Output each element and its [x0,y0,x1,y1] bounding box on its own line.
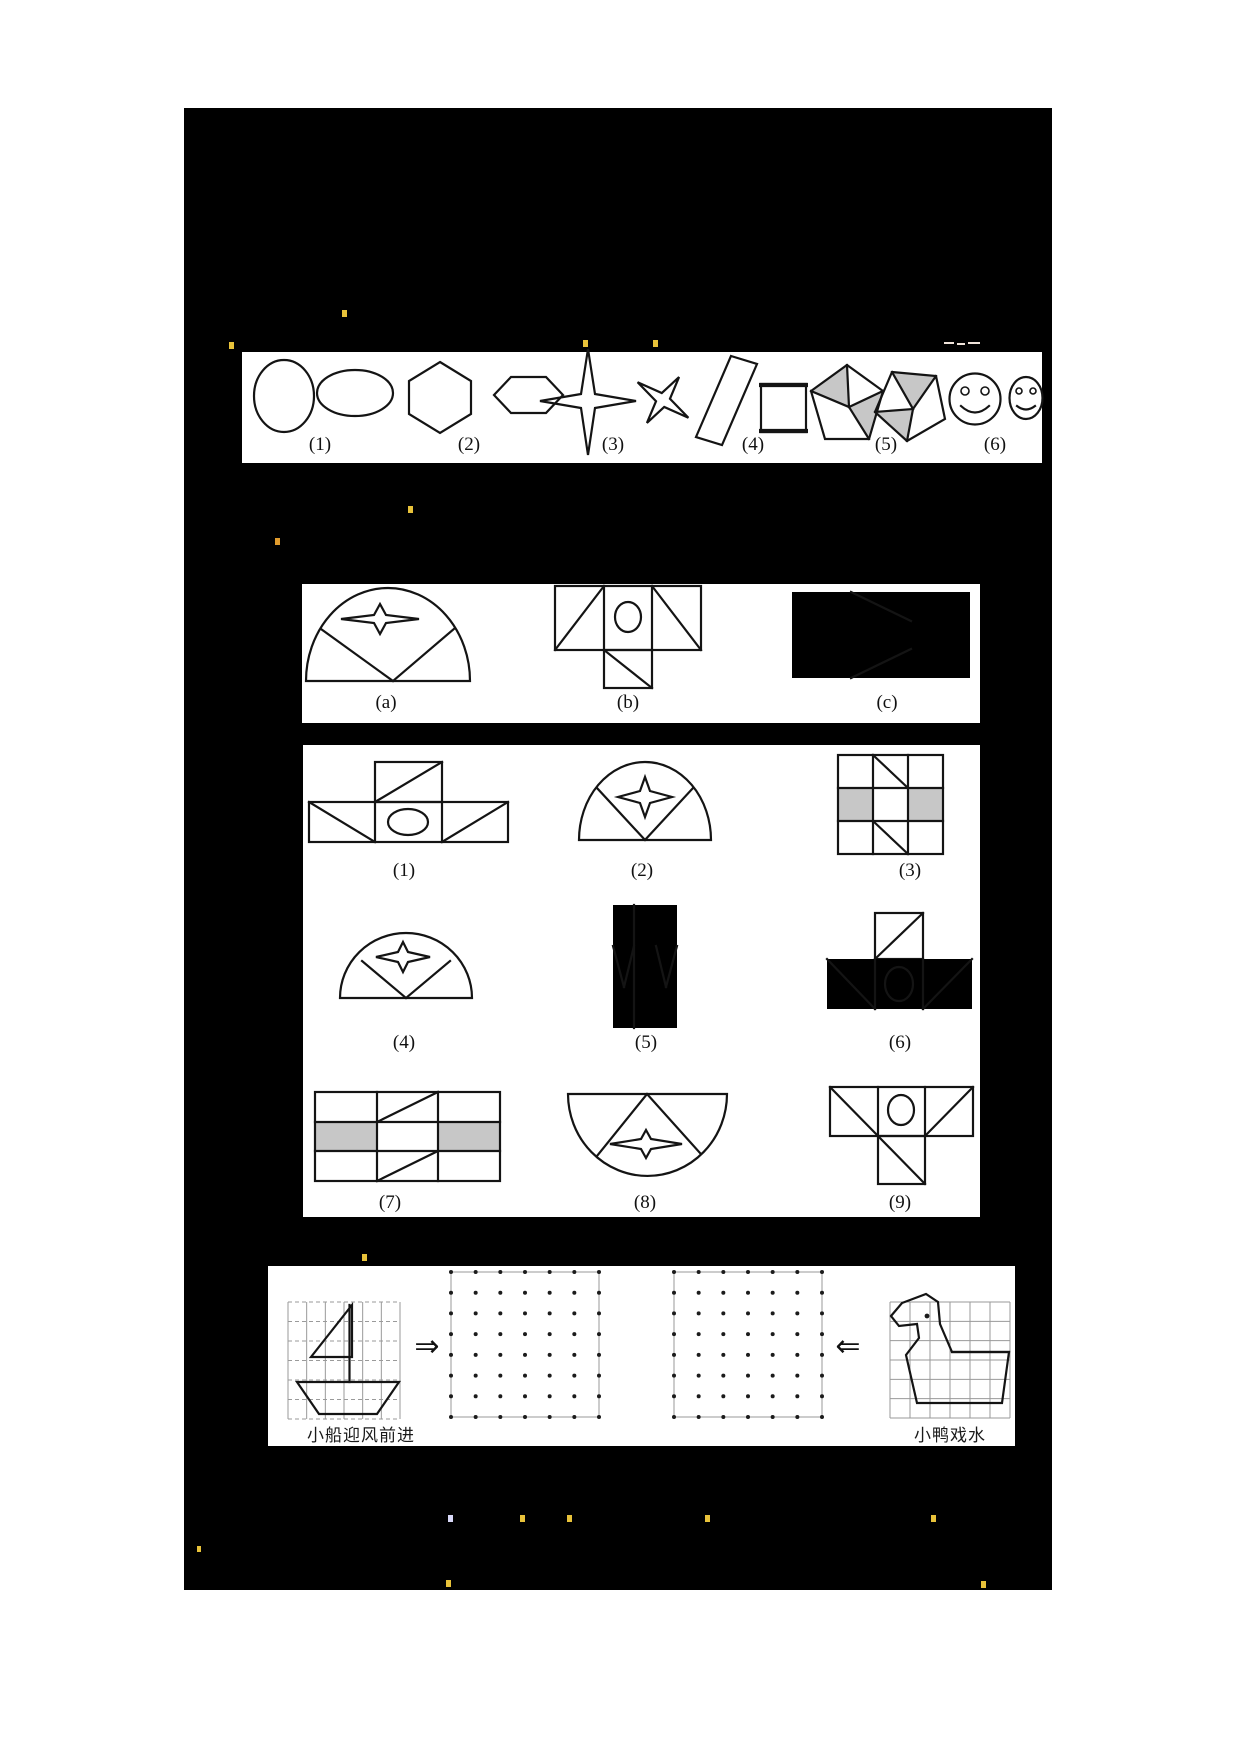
boat-caption: 小船迎风前进 [307,1421,415,1446]
panel1-label-4: (4) [742,434,764,456]
figure-c-shaded-grid [792,592,970,678]
panel1-label-1: (1) [309,434,331,456]
panel2-label-c: (c) [876,692,897,714]
panel3-label-6: (6) [889,1032,911,1054]
panel3-label-8: (8) [634,1192,656,1214]
panel1-label-3: (3) [602,434,624,456]
panel-nine-figures [303,745,980,1217]
artifact-mark [362,1254,367,1261]
panel2-label-b: (b) [617,692,639,714]
panel3-label-5: (5) [635,1032,657,1054]
panel3-label-7: (7) [379,1192,401,1214]
artifact-mark [567,1515,572,1522]
figure-5-vertical-grid [613,905,677,1028]
panel-copy-exercise [268,1266,1015,1446]
artifact-mark [197,1546,201,1552]
panel1-label-6: (6) [984,434,1006,456]
worksheet-page: { "theme": { "page_bg": "#ffffff", "boar… [0,0,1240,1754]
artifact-mark [229,342,234,349]
artifact-mark [520,1515,525,1522]
panel-shape-pairs [242,349,1043,463]
artifact-mark [275,538,280,545]
artifact-mark [981,1581,986,1588]
artifact-mark [931,1515,936,1522]
duck-caption: 小鸭戏水 [914,1421,986,1446]
artifact-mark [653,340,658,347]
figures-canvas [0,0,1240,1754]
artifact-mark [583,340,588,347]
panel1-background [242,352,1042,463]
panel3-label-1: (1) [393,860,415,882]
right-double-arrow: ⇒ [414,1332,439,1362]
panel3-label-2: (2) [631,860,653,882]
artifact-mark [342,310,347,317]
panel1-label-5: (5) [875,434,897,456]
panel3-label-4: (4) [393,1032,415,1054]
panel2-label-a: (a) [375,692,396,714]
artifact-mark [705,1515,710,1522]
artifact-mark [448,1515,453,1522]
artifact-mark [408,506,413,513]
panel1-label-2: (2) [458,434,480,456]
panel3-label-3: (3) [899,860,921,882]
artifact-mark [446,1580,451,1587]
left-double-arrow: ⇐ [835,1332,860,1362]
panel3-label-9: (9) [889,1192,911,1214]
